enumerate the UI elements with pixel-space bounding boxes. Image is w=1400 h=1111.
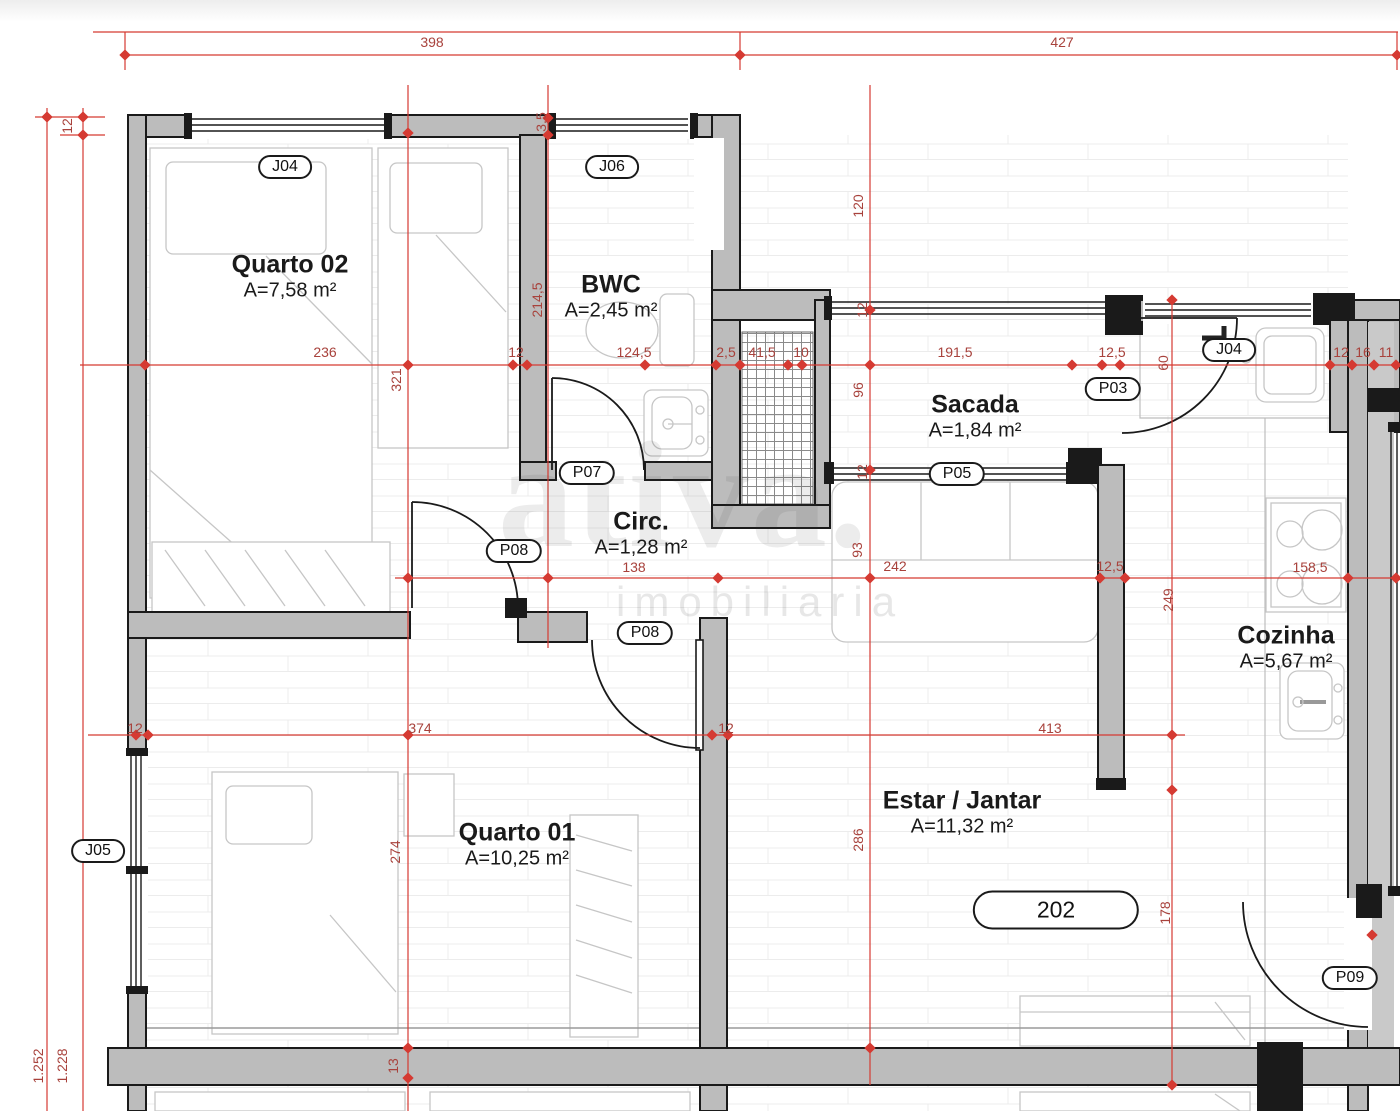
dimension-label: 2,5: [716, 344, 735, 360]
tag-p08: P08: [617, 621, 673, 645]
room-area: A=11,32 m²: [883, 815, 1041, 839]
dimension-label: 12,5: [1096, 558, 1123, 574]
floor-plan-page: ativa. imobiliaria Quarto 02A=7,58 m²BWC…: [0, 0, 1400, 1111]
tag-j04: J04: [1202, 338, 1256, 362]
dimension-label: 158,5: [1292, 559, 1327, 575]
dimension-label: 398: [420, 34, 443, 50]
room-name: Estar / Jantar: [883, 788, 1041, 815]
dimension-label-vertical: 12: [854, 464, 870, 480]
dimension-label: 236: [313, 344, 336, 360]
tag-j06: J06: [585, 155, 639, 179]
dimension-label: 12: [718, 720, 734, 736]
dimension-label-vertical: 60: [1155, 355, 1171, 371]
dimension-label: 413: [1038, 720, 1061, 736]
dimension-label: 124,5: [616, 344, 651, 360]
dimension-label-vertical: 96: [850, 382, 866, 398]
room-name: Quarto 02: [232, 252, 349, 279]
dimension-label: 242: [883, 558, 906, 574]
dimension-label-vertical: 178: [1157, 901, 1173, 924]
room-name: BWC: [565, 272, 658, 299]
window-j04-quarto-02: [184, 113, 392, 139]
room-label-cozinha: CozinhaA=5,67 m²: [1237, 623, 1334, 674]
room-area: A=2,45 m²: [565, 299, 658, 323]
window-j05-quarto-01: [126, 748, 148, 994]
dimension-label-vertical: 321: [388, 368, 404, 391]
room-label-sacada: SacadaA=1,84 m²: [929, 392, 1022, 443]
tag-j05: J05: [71, 839, 125, 863]
tag-p09: P09: [1322, 966, 1378, 990]
tag-p08: P08: [486, 539, 542, 563]
room-label-estar-jantar: Estar / JantarA=11,32 m²: [883, 788, 1041, 839]
dimension-label-vertical: 3,5: [533, 112, 549, 131]
dimension-label-vertical: 13: [385, 1058, 401, 1074]
dimension-label: 11: [1379, 344, 1394, 360]
bed-quarto-02-right: [378, 148, 508, 448]
dimension-label-vertical: 286: [850, 828, 866, 851]
dimension-label: 12: [508, 344, 524, 360]
stove-icon: [1266, 498, 1346, 612]
dimension-label-vertical: 1.228: [54, 1048, 70, 1083]
dimension-label: 191,5: [937, 344, 972, 360]
room-label-quarto-02: Quarto 02A=7,58 m²: [232, 252, 349, 303]
dimension-label: 12: [1333, 344, 1349, 360]
tv-rack: [1020, 996, 1250, 1046]
room-name: Cozinha: [1237, 623, 1334, 650]
bwc-tall-window: [694, 138, 724, 250]
room-area: A=1,84 m²: [929, 419, 1022, 443]
room-area: A=10,25 m²: [459, 847, 576, 871]
dimension-label: 374: [408, 720, 431, 736]
dimension-label: 10: [793, 344, 809, 360]
room-area: A=7,58 m²: [232, 279, 349, 303]
dimension-label: 427: [1050, 34, 1073, 50]
tag-p03: P03: [1085, 377, 1141, 401]
dimension-label: 12: [127, 720, 143, 736]
room-label-bwc: BWCA=2,45 m²: [565, 272, 658, 323]
dimension-label: 12,5: [1098, 344, 1125, 360]
dimension-label: 138: [622, 559, 645, 575]
room-label-quarto-01: Quarto 01A=10,25 m²: [459, 820, 576, 871]
bed-quarto-02-left: [150, 148, 372, 598]
room-area: A=1,28 m²: [595, 536, 688, 560]
dimension-label: 16: [1355, 344, 1371, 360]
dimension-label-vertical: 93: [849, 542, 865, 558]
dimension-label-vertical: 12: [59, 118, 75, 134]
dimension-label-vertical: 274: [387, 840, 403, 863]
dimension-label-vertical: 12: [854, 302, 870, 318]
room-name: Circ.: [595, 509, 688, 536]
tag-p05: P05: [929, 462, 985, 486]
dimension-label-vertical: 214,5: [529, 282, 545, 317]
wardrobe-quarto-01: [570, 815, 638, 1037]
dimension-label: 41,5: [748, 344, 775, 360]
room-name: Quarto 01: [459, 820, 576, 847]
dimension-label-vertical: 249: [1160, 588, 1176, 611]
tag-j04: J04: [258, 155, 312, 179]
watermark-subtitle: imobiliaria: [616, 578, 904, 626]
room-label-circ: Circ.A=1,28 m²: [595, 509, 688, 560]
room-name: Sacada: [929, 392, 1022, 419]
unit-number-tag: 202: [973, 891, 1139, 930]
dimension-label-vertical: 1.252: [30, 1048, 46, 1083]
tag-p07: P07: [559, 461, 615, 485]
room-area: A=5,67 m²: [1237, 650, 1334, 674]
window-j06-bwc: [548, 113, 698, 139]
dimension-label-vertical: 120: [850, 194, 866, 217]
door-p09-hinge: [1356, 884, 1382, 918]
wardrobe-quarto-02: [152, 542, 390, 614]
kitchen-sink-bottom-icon: [1280, 663, 1344, 739]
